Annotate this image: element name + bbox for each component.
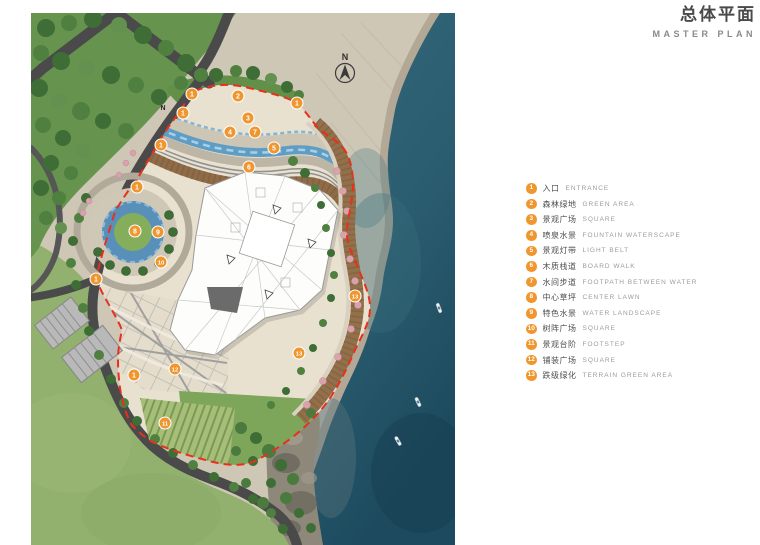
north-label: N	[342, 52, 349, 62]
legend-label-cn: 水间步道	[543, 277, 577, 288]
legend-number-badge: 6	[526, 261, 537, 272]
legend-number-badge: 4	[526, 230, 537, 241]
legend-item-7: 7水间步道FOOTPATH BETWEEN WATER	[526, 277, 697, 288]
legend-label-cn: 跌级绿化	[543, 370, 577, 381]
svg-text:12: 12	[172, 367, 178, 373]
page-header: 总体平面 MASTER PLAN	[653, 6, 757, 39]
legend-number-badge: 11	[526, 339, 537, 350]
legend-number-badge: 10	[526, 324, 537, 335]
plan-marker-11: 11	[159, 417, 171, 429]
legend-number-badge: 3	[526, 214, 537, 225]
plan-marker-10: 10	[155, 256, 167, 268]
svg-text:3: 3	[246, 115, 250, 122]
plan-marker-1: 1	[186, 88, 198, 100]
plan-marker-13: 13	[349, 290, 361, 302]
legend-label-en: SQUARE	[583, 357, 616, 364]
legend-label-en: BOARD WALK	[583, 263, 636, 270]
plan-marker-1: 1	[128, 369, 140, 381]
legend-number-badge: 12	[526, 355, 537, 366]
legend-label-cn: 树阵广场	[543, 323, 577, 334]
svg-text:1: 1	[135, 184, 139, 191]
legend-label-cn: 中心草坪	[543, 292, 577, 303]
legend-label-cn: 喷泉水景	[543, 230, 577, 241]
master-plan-sheet: 总体平面 MASTER PLAN	[0, 0, 760, 545]
svg-text:7: 7	[253, 129, 257, 136]
legend-label-en: GREEN AREA	[583, 201, 635, 208]
svg-text:1: 1	[94, 276, 98, 283]
legend-item-13: 13跌级绿化TERRAIN GREEN AREA	[526, 370, 697, 381]
plan-marker-4: 4	[224, 126, 236, 138]
legend-item-2: 2森林绿地GREEN AREA	[526, 199, 697, 210]
plan-marker-3: 3	[242, 112, 254, 124]
plan-marker-2: 2	[232, 90, 244, 102]
legend-label-cn: 景观广场	[543, 214, 577, 225]
plan-marker-13: 13	[293, 347, 305, 359]
plan-marker-5: 5	[268, 142, 280, 154]
legend-item-8: 8中心草坪CENTER LAWN	[526, 292, 697, 303]
legend-label-en: WATER LANDSCAPE	[583, 310, 662, 317]
master-plan-drawing: N N 1111111234756891012111313	[31, 13, 455, 545]
svg-text:4: 4	[228, 129, 232, 136]
svg-text:5: 5	[272, 145, 276, 152]
legend-label-cn: 特色水景	[543, 308, 577, 319]
legend-item-6: 6木质栈道BOARD WALK	[526, 261, 697, 272]
svg-text:8: 8	[133, 228, 137, 235]
svg-text:1: 1	[159, 142, 163, 149]
legend-item-12: 12铺装广场SQUARE	[526, 355, 697, 366]
legend-label-cn: 木质栈道	[543, 261, 577, 272]
legend: 1入口ENTRANCE2森林绿地GREEN AREA3景观广场SQUARE4喷泉…	[526, 183, 697, 386]
legend-label-en: CENTER LAWN	[583, 294, 641, 301]
legend-label-en: FOUNTAIN WATERSCAPE	[583, 232, 681, 239]
legend-item-9: 9特色水景WATER LANDSCAPE	[526, 308, 697, 319]
svg-text:2: 2	[236, 93, 240, 100]
legend-number-badge: 7	[526, 277, 537, 288]
legend-label-en: TERRAIN GREEN AREA	[583, 372, 674, 379]
legend-item-11: 11景观台阶FOOTSTEP	[526, 339, 697, 350]
legend-label-cn: 入口	[543, 183, 560, 194]
legend-item-4: 4喷泉水景FOUNTAIN WATERSCAPE	[526, 230, 697, 241]
plan-marker-1: 1	[155, 139, 167, 151]
legend-label-en: ENTRANCE	[566, 185, 610, 192]
legend-label-cn: 森林绿地	[543, 199, 577, 210]
legend-number-badge: 8	[526, 292, 537, 303]
legend-label-cn: 景观台阶	[543, 339, 577, 350]
legend-item-5: 5景观灯带LIGHT BELT	[526, 245, 697, 256]
inner-north-label: N	[160, 105, 165, 112]
svg-text:9: 9	[156, 229, 160, 236]
svg-text:6: 6	[247, 164, 251, 171]
plan-marker-9: 9	[152, 226, 164, 238]
legend-label-en: FOOTSTEP	[583, 341, 626, 348]
legend-item-10: 10树阵广场SQUARE	[526, 323, 697, 334]
svg-text:1: 1	[181, 110, 185, 117]
legend-label-en: FOOTPATH BETWEEN WATER	[583, 279, 698, 286]
page-title-en: MASTER PLAN	[653, 29, 757, 39]
plan-marker-1: 1	[177, 107, 189, 119]
plan-marker-1: 1	[131, 181, 143, 193]
plan-marker-12: 12	[169, 363, 181, 375]
plan-marker-1: 1	[90, 273, 102, 285]
plan-marker-1: 1	[291, 97, 303, 109]
svg-text:13: 13	[296, 351, 303, 357]
legend-item-3: 3景观广场SQUARE	[526, 214, 697, 225]
legend-label-en: LIGHT BELT	[583, 247, 630, 254]
page-title-cn: 总体平面	[653, 6, 757, 25]
legend-number-badge: 2	[526, 199, 537, 210]
svg-text:1: 1	[295, 100, 299, 107]
legend-label-en: SQUARE	[583, 325, 616, 332]
svg-text:11: 11	[162, 421, 169, 427]
legend-label-en: SQUARE	[583, 216, 616, 223]
legend-number-badge: 1	[526, 183, 537, 194]
svg-text:1: 1	[132, 372, 136, 379]
legend-number-badge: 9	[526, 308, 537, 319]
svg-text:13: 13	[352, 294, 359, 300]
legend-label-cn: 铺装广场	[543, 355, 577, 366]
legend-number-badge: 5	[526, 246, 537, 257]
legend-number-badge: 13	[526, 370, 537, 381]
plan-marker-8: 8	[129, 225, 141, 237]
legend-label-cn: 景观灯带	[543, 245, 577, 256]
legend-item-1: 1入口ENTRANCE	[526, 183, 697, 194]
svg-text:10: 10	[158, 260, 164, 266]
svg-text:1: 1	[190, 91, 194, 98]
plan-marker-7: 7	[249, 126, 261, 138]
plan-marker-6: 6	[243, 161, 255, 173]
